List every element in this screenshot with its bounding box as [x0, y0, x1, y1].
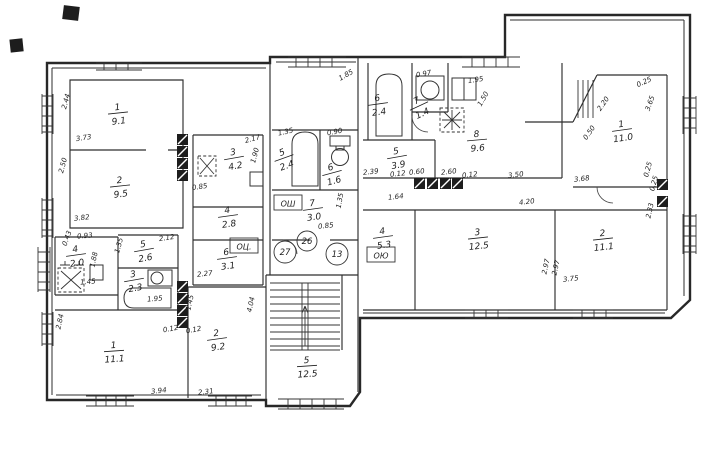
- room-area: 2.0: [69, 258, 85, 270]
- marker-text: ОЮ: [374, 252, 389, 261]
- dimension-label: 1.35: [335, 192, 346, 209]
- vent-shaft: [452, 178, 463, 189]
- room-label: 312.5: [467, 227, 490, 253]
- room-label: 111.0: [611, 119, 634, 146]
- room-number: 4: [379, 227, 386, 238]
- bathtub-center: [292, 132, 318, 186]
- circled-marker: 13: [326, 243, 348, 265]
- vent-shaft: [177, 281, 188, 292]
- room-area: 9.2: [210, 342, 226, 354]
- room-label: 45.3: [372, 226, 395, 253]
- vent-shaft: [427, 178, 438, 189]
- room-number: 6: [374, 94, 381, 105]
- dimension-label: 2.12: [158, 233, 175, 243]
- dimension-label: 0.50: [582, 124, 598, 142]
- room-area: 4.2: [228, 161, 244, 173]
- dimension-label: 1.95: [147, 294, 164, 303]
- room-label: 42.0: [65, 244, 88, 271]
- dimension-label: 3.68: [574, 174, 591, 184]
- dimension-label: 1.35: [277, 126, 294, 137]
- room-area: 2.3: [128, 283, 144, 295]
- flue-box-room3: [250, 172, 263, 186]
- room-area: 2.8: [221, 219, 237, 231]
- dimension-label: 1.45: [80, 277, 97, 286]
- room-label: 62.4: [367, 93, 390, 120]
- room-number: 2: [116, 176, 123, 187]
- dimension-label: 2.50: [57, 156, 69, 174]
- room-area: 9.5: [113, 189, 129, 200]
- dimension-label: 4.04: [246, 296, 257, 313]
- bathtub-right: [376, 74, 402, 136]
- dimension-label: 0.12: [390, 169, 407, 179]
- dimension-label: 3.94: [151, 386, 167, 396]
- room-label: 211.1: [592, 228, 614, 254]
- room-number: 3: [129, 270, 137, 281]
- dimension-label: 3.75: [563, 274, 580, 284]
- dimension-label: 1.35: [113, 236, 125, 254]
- dimension-label: 3.65: [644, 94, 657, 112]
- dimension-label: 0.85: [318, 221, 335, 231]
- room-number: 1: [114, 103, 121, 114]
- room-label: 52.4: [271, 145, 298, 174]
- room-number: 1: [110, 341, 116, 351]
- room-area: 12.5: [297, 369, 318, 380]
- room-label: 52.6: [132, 238, 156, 265]
- vent-shaft: [177, 146, 188, 157]
- marker-text: 27: [280, 248, 291, 258]
- washbasin-left: [148, 270, 172, 286]
- dimension-label: 0.97: [415, 69, 432, 80]
- window-marking: [278, 399, 344, 409]
- dimension-label: 2.84: [55, 313, 66, 330]
- room-number: 3: [474, 228, 481, 239]
- toilet-center: [330, 136, 350, 166]
- dimension-label: 1.85: [337, 68, 355, 83]
- room-number: 2: [599, 229, 606, 240]
- dimension-label: 1.50: [476, 90, 491, 108]
- dimension-label: 0.12: [185, 325, 202, 336]
- stair-direction-arrow: [302, 306, 308, 346]
- floor-plan-canvas: 19.129.534.242.863.142.052.632.3111.129.…: [0, 0, 724, 474]
- room-number: 5: [139, 240, 147, 251]
- room-label: 34.2: [222, 146, 246, 173]
- marker-text: 26: [302, 237, 313, 247]
- dimension-label: 0.93: [77, 231, 93, 240]
- room-area: 12.5: [468, 241, 489, 253]
- room-area: 5.3: [376, 240, 392, 252]
- dimension-label: 2.60: [441, 167, 458, 177]
- dimension-label: 1.64: [388, 192, 404, 202]
- vent-shaft: [414, 178, 425, 189]
- room-number: 7: [309, 199, 316, 210]
- room-number: 5: [303, 356, 310, 366]
- scan-artifact-marks: [9, 5, 79, 53]
- circled-marker: 27: [274, 241, 296, 263]
- room-number: 3: [229, 148, 237, 159]
- room-label: 512.5: [296, 355, 318, 380]
- dimension-label: 2.39: [363, 167, 380, 177]
- room-label: 111.1: [103, 340, 125, 365]
- marker-text: 13: [332, 250, 343, 260]
- dimension-label: 0.12: [462, 170, 479, 180]
- room-number: 8: [473, 130, 480, 140]
- floor-plan-page: 19.129.534.242.863.142.052.632.3111.129.…: [0, 0, 724, 474]
- dimension-label: 1.95: [467, 75, 484, 85]
- circled-markers-layer: 272613: [274, 231, 348, 265]
- room-label: 71.4: [406, 93, 434, 123]
- dimension-label: 0.60: [409, 167, 426, 177]
- room-area: 3.1: [220, 261, 236, 273]
- marker-text: ОШ: [281, 200, 296, 209]
- stairwell: [270, 283, 340, 350]
- dimension-label: 0.43: [61, 230, 74, 247]
- room-area: 2.4: [371, 107, 387, 119]
- dimension-label: 0.25: [635, 75, 653, 89]
- dimension-label: 3.50: [508, 170, 525, 180]
- room-label: 53.9: [385, 145, 409, 172]
- vent-shaft: [177, 158, 188, 169]
- window-marking: [462, 57, 520, 67]
- dimension-label: 3.82: [74, 213, 91, 223]
- room-area: 11.1: [593, 242, 614, 254]
- marker-text: ОЦ.: [236, 243, 251, 252]
- room-label: 19.1: [107, 102, 129, 128]
- dimension-label: 2.27: [197, 269, 214, 279]
- washbasin-right: [416, 76, 444, 100]
- dimension-label: 4.20: [519, 197, 536, 207]
- vent-shaft: [657, 196, 668, 207]
- room-number: 6: [223, 248, 230, 259]
- room-area: 2.4: [279, 159, 296, 173]
- fixtures: [58, 74, 613, 308]
- dimension-label: 1.90: [249, 146, 261, 164]
- room-area: 1.4: [414, 106, 431, 121]
- room-area: 2.6: [138, 253, 154, 265]
- dimension-labels-layer: 2.443.732.503.822.171.900.852.270.430.93…: [55, 68, 661, 397]
- dimension-label: 0.85: [191, 182, 208, 192]
- room-area: 11.1: [104, 354, 125, 365]
- dimension-label: 3.73: [75, 133, 92, 143]
- room-number: 4: [72, 245, 79, 256]
- room-label: 29.5: [109, 175, 131, 201]
- room-number: 1: [618, 120, 625, 131]
- vent-shaft: [440, 178, 451, 189]
- room-label: 42.8: [217, 205, 240, 232]
- boxed-marker: ОШ: [274, 195, 302, 210]
- room-area: 11.0: [613, 133, 635, 146]
- room-number: 2: [213, 329, 220, 340]
- room-area: 1.6: [326, 175, 343, 188]
- circled-marker: 26: [297, 231, 317, 251]
- dimension-label: 2.33: [645, 202, 656, 219]
- vent-shaft: [177, 134, 188, 145]
- vent-shaft: [177, 170, 188, 181]
- room-label: 89.6: [466, 129, 488, 155]
- room-number: 5: [392, 147, 400, 158]
- room-label: 73.0: [302, 198, 325, 225]
- dimension-label: 2.97: [551, 259, 562, 276]
- room-label: 29.2: [206, 328, 229, 355]
- stove-room3: [198, 156, 216, 176]
- room-label: 63.1: [216, 247, 239, 274]
- dimension-label: 0.12: [162, 324, 179, 335]
- dimension-label: 2.31: [198, 387, 214, 397]
- room-area: 9.6: [470, 143, 485, 154]
- room-area: 9.1: [111, 116, 126, 127]
- dimension-label: 2.20: [596, 95, 612, 113]
- room-number: 6: [327, 163, 335, 174]
